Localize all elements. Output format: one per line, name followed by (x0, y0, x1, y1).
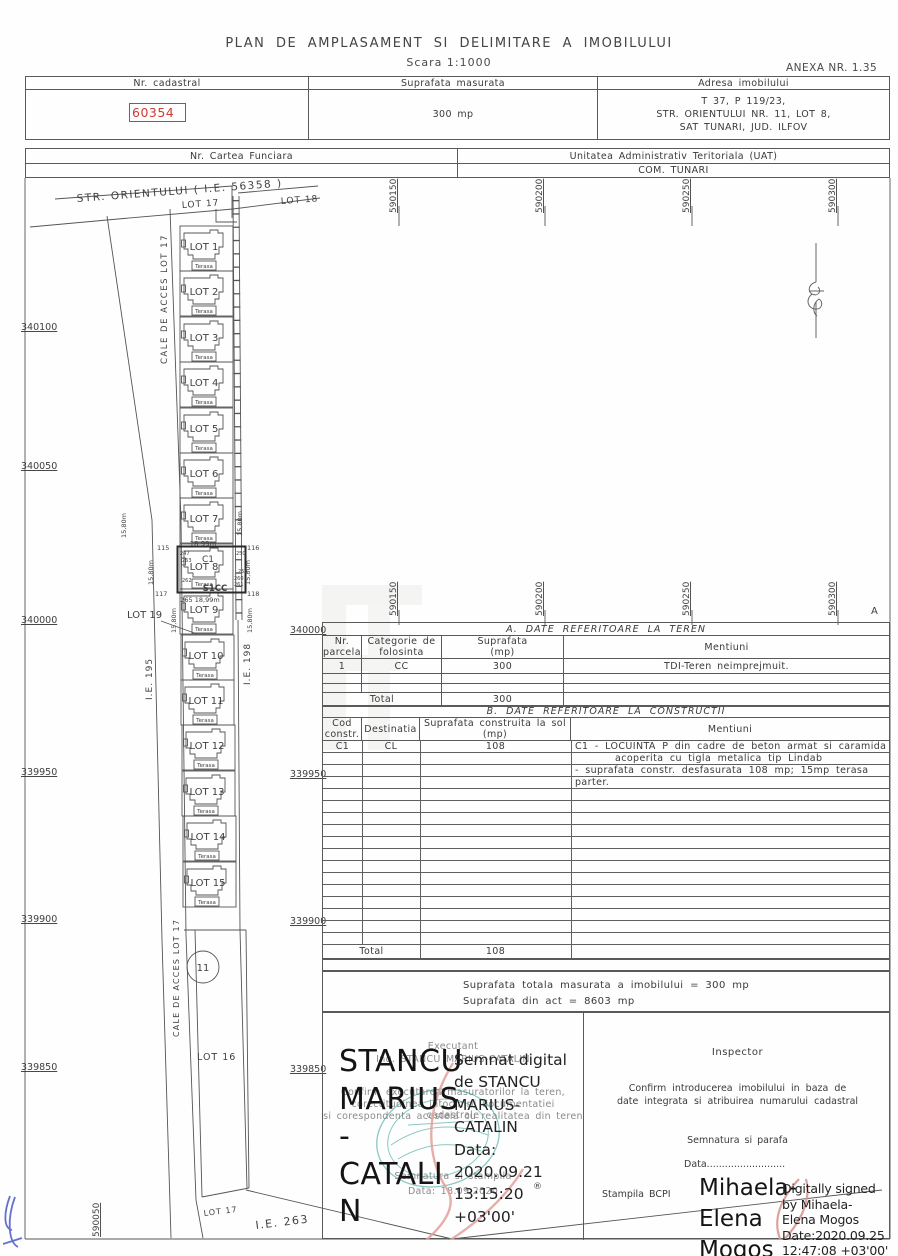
pt-250: 250 (236, 551, 246, 557)
address-line3: SAT TUNARI, JUD. ILFOV (680, 121, 808, 134)
measured-area-value: 300 mp (309, 90, 598, 139)
document-title: PLAN DE AMPLASAMENT SI DELIMITARE A IMOB… (0, 36, 898, 51)
terasa-label: Terasa (194, 355, 213, 361)
mentiuni-line3: - suprafata constr. desfasurata 108 mp; … (575, 765, 889, 789)
total-measured-area: Suprafata totala masurata a imobilului =… (463, 978, 889, 994)
access-road-top-label: CALE DE ACCES LOT 17 (160, 234, 170, 364)
mentiuni-line1: C1 - LOCUINTA P din cadre de beton armat… (575, 741, 886, 753)
cod-value: C1 (323, 741, 362, 753)
lot17-top-label: LOT 17 (182, 198, 220, 211)
address-line2: STR. ORIENTULUI NR. 11, LOT 8, (656, 108, 830, 121)
header-table: Nr. cadastral Suprafata masurata Adresa … (25, 76, 890, 140)
table-a-header-suprafata: Suprafata (mp) (442, 636, 564, 658)
table-b-header-cod: Cod constr. (323, 718, 362, 740)
pt-247: 247 (180, 551, 190, 557)
svg-text:339950: 339950 (290, 769, 326, 780)
terasa-label: Terasa (196, 763, 215, 769)
table-a-header-categorie: Categorie de folosinta (362, 636, 442, 658)
pt-115: 115 (157, 544, 169, 552)
deed-area: Suprafata din act = 8603 mp (463, 994, 889, 1010)
table-b-rows: C1 CL 108 C1 - LOCUINTA P din cadre de b… (323, 741, 889, 945)
table-a-teren: A. DATE REFERITOARE LA TEREN Nr. parcela… (322, 622, 890, 707)
terasa-label: Terasa (194, 309, 213, 315)
totals-box: Suprafata totala masurata a imobilului =… (322, 971, 890, 1012)
terasa-label: Terasa (196, 809, 215, 815)
table-b-total-row: Total 108 (323, 945, 889, 958)
signature-section: Executant Ing. STANCU MARIUS-CATALIN Con… (322, 1012, 890, 1239)
suprafata-value: 108 (420, 741, 571, 753)
header-col1-label: Nr. cadastral (26, 77, 309, 89)
lot-label: LOT 14 (190, 832, 225, 843)
header-col2-label: Suprafata masurata (309, 77, 598, 89)
ie263-label: I.E. 263 (255, 1213, 310, 1232)
anexa-label: ANEXA NR. 1.35 (786, 62, 877, 74)
svg-text:340100: 340100 (21, 322, 57, 333)
svg-text:340000: 340000 (21, 615, 57, 626)
executant-digital-signature-name: STANCU MARIUS - CATALI N (339, 1043, 463, 1231)
pt-118: 118 (247, 590, 259, 598)
lot-column: LOT 1Terasa LOT 2Terasa LOT 3Terasa LOT … (180, 226, 236, 907)
terasa-label: Terasa (195, 718, 214, 724)
header-col3-label: Adresa imobilului (598, 77, 889, 89)
cf-col1-label: Nr. Cartea Funciara (26, 149, 458, 163)
lot-label: LOT 12 (189, 741, 224, 752)
svg-text:590300: 590300 (828, 581, 838, 616)
lot-label: LOT 5 (190, 424, 219, 435)
table-a-header-mentiuni: Mentiuni (564, 636, 889, 658)
len-top: 18,99m (190, 540, 217, 548)
c1-label: C1 (202, 555, 214, 565)
table-a-title: A. DATE REFERITOARE LA TEREN (323, 623, 889, 636)
lot-label: LOT 11 (188, 696, 223, 707)
mentiuni-line2: acoperita cu tigla metalica tip Lindab (615, 753, 822, 765)
lot-label: LOT 10 (188, 651, 223, 662)
cadastral-plan-document: STR. ORIENTULUI ( I.E. 56358 ) LOT 17 LO… (0, 0, 898, 1256)
access-road-bottom-label: CALE DE ACCES LOT 17 (172, 919, 181, 1037)
lot-label: LOT 15 (190, 878, 225, 889)
corner-a-label: A (871, 606, 878, 617)
terasa-label: Terasa (197, 854, 216, 860)
svg-text:15,80m: 15,80m (170, 608, 178, 633)
parcel-11-number: 11 (197, 963, 210, 974)
north-arrow-icon (808, 243, 824, 338)
street-label: STR. ORIENTULUI ( I.E. 56358 ) (76, 178, 283, 205)
uat-value: COM. TUNARI (458, 164, 889, 177)
lot-label: LOT 3 (190, 333, 219, 344)
table-b-header-mentiuni: Mentiuni (571, 718, 889, 740)
svg-text:339900: 339900 (21, 914, 57, 925)
pt-262: 262 (182, 578, 192, 584)
cf-table: Nr. Cartea Funciara Unitatea Administrat… (25, 148, 890, 178)
svg-text:340050: 340050 (21, 461, 57, 472)
executant-digital-signature-details: Semnat digital de STANCU MARIUS- CATALIN… (454, 1049, 567, 1228)
table-a-row: 1 CC 300 TDI-Teren neimprejmuit. (323, 659, 889, 674)
ie195-label: I.E. 195 (145, 658, 155, 700)
terasa-label: Terasa (197, 900, 216, 906)
s1cc-label: S1CC (203, 584, 228, 594)
pen-mark-icon (3, 1196, 22, 1247)
svg-text:590250: 590250 (682, 178, 692, 213)
svg-text:590150: 590150 (389, 178, 399, 213)
lot17-bottom-label: LOT 17 (203, 1205, 238, 1218)
lot16-label: LOT 16 (197, 1052, 236, 1063)
svg-text:339850: 339850 (290, 1064, 326, 1075)
lot-label: LOT 13 (189, 787, 224, 798)
destinatia-value: CL (362, 741, 420, 753)
table-b-header-destinatia: Destinatia (362, 718, 420, 740)
northing-labels-right: 340000 339950 339900 339850 (290, 625, 326, 1075)
svg-text:590300: 590300 (828, 178, 838, 213)
lot-label: LOT 2 (190, 287, 219, 298)
lot-label: LOT 4 (190, 378, 219, 389)
executant-box: Executant Ing. STANCU MARIUS-CATALIN Con… (323, 1013, 584, 1240)
terasa-label: Terasa (194, 400, 213, 406)
svg-text:339900: 339900 (290, 916, 326, 927)
terasa-label: Terasa (194, 491, 213, 497)
easting-labels-mid: 590150 590200 590250 590300 (389, 581, 838, 625)
access-road-lines (107, 209, 203, 1238)
terasa-label: Terasa (194, 264, 213, 270)
table-b-constructii: B. DATE REFERITOARE LA CONSTRUCTII Cod c… (322, 705, 890, 959)
svg-text:590200: 590200 (535, 581, 545, 616)
inspector-digital-signature-details: Digitally signed by Mihaela- Elena Mogos… (782, 1181, 888, 1256)
pt-263: 263 (182, 558, 192, 564)
terasa-label: Terasa (194, 446, 213, 452)
lot19-label: LOT 19 (127, 610, 162, 621)
cf-value (26, 164, 458, 177)
pt-117: 117 (155, 590, 167, 598)
svg-text:590150: 590150 (389, 581, 399, 616)
terasa-label: Terasa (194, 627, 213, 633)
pt-116: 116 (247, 544, 259, 552)
svg-text:340000: 340000 (290, 625, 326, 636)
svg-text:339850: 339850 (21, 1062, 57, 1073)
svg-text:590200: 590200 (535, 178, 545, 213)
svg-text:339950: 339950 (21, 767, 57, 778)
address-line1: T 37, P 119/23, (701, 95, 785, 108)
lot-label: LOT 6 (190, 469, 219, 480)
spacer-band (322, 959, 890, 971)
table-a-empty-row (323, 684, 889, 693)
northing-labels-left: 340100 340050 340000 339950 339900 33985… (21, 322, 57, 1073)
lot18-label: LOT 18 (281, 194, 319, 207)
east-boundary-lines (233, 196, 247, 1188)
table-b-header-suprafata: Suprafata construita la sol (mp) (420, 718, 571, 740)
table-a-empty-row (323, 674, 889, 684)
svg-text:15,80m: 15,80m (244, 560, 252, 585)
table-b-title: B. DATE REFERITOARE LA CONSTRUCTII (323, 706, 889, 718)
lot-label: LOT 7 (190, 514, 219, 525)
svg-text:15,80m: 15,80m (120, 513, 128, 538)
uat-label: Unitatea Administrativ Teritoriala (UAT) (458, 149, 889, 163)
ie198-label: I.E. 198 (243, 643, 253, 685)
inspector-box: Inspector Confirm introducerea imobilulu… (584, 1013, 891, 1240)
easting-labels-top: 590150 590200 590250 590300 (389, 178, 838, 226)
svg-text:590250: 590250 (682, 581, 692, 616)
lot-label: LOT 9 (190, 605, 219, 616)
lot-label: LOT 1 (190, 242, 219, 253)
cadastral-number-box: 60354 (129, 103, 186, 122)
len-bottom: 265 18,99m (180, 596, 219, 604)
terasa-label: Terasa (195, 673, 214, 679)
table-a-header-nr: Nr. parcela (323, 636, 362, 658)
pt-261: 261 (234, 582, 244, 588)
svg-text:15,80m: 15,80m (236, 511, 244, 536)
svg-text:15,80m: 15,80m (147, 560, 155, 585)
easting-label-bottom: 590050 (92, 1202, 102, 1237)
document-scale: Scara 1:1000 (0, 56, 898, 69)
svg-text:15,80m: 15,80m (246, 608, 254, 633)
